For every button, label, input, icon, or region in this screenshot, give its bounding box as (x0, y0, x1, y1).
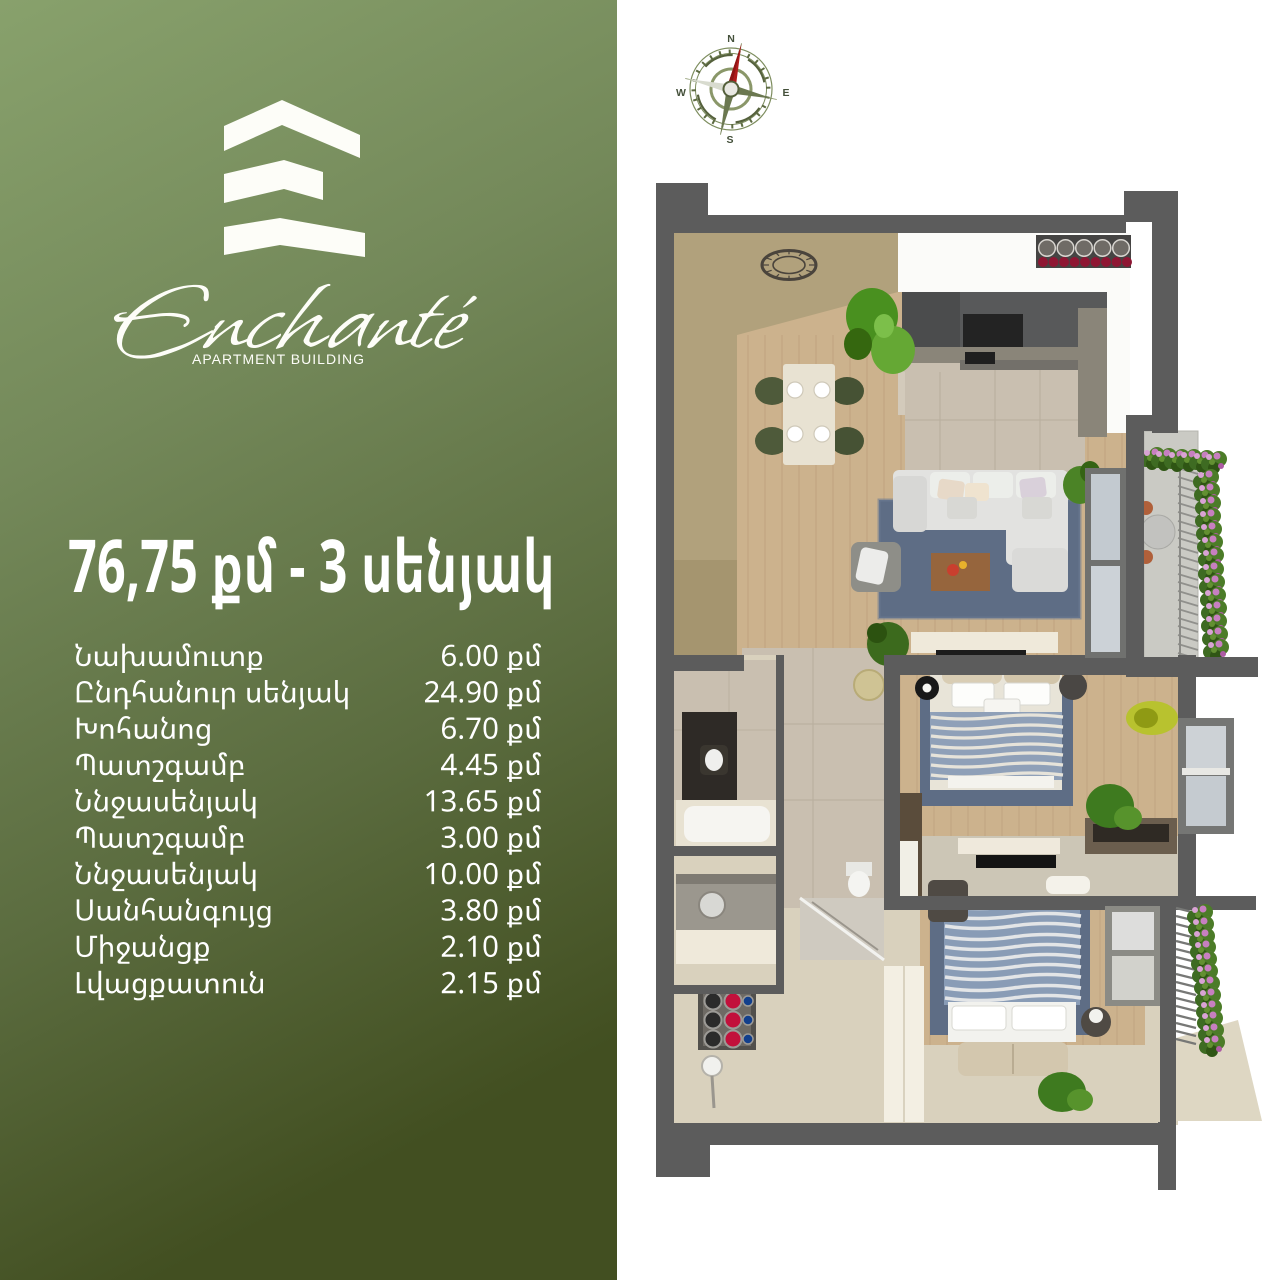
svg-text:APARTMENT BUILDING: APARTMENT BUILDING (192, 351, 365, 367)
svg-text:E: E (782, 87, 789, 99)
svg-text:S: S (726, 134, 733, 146)
svg-text:W: W (676, 87, 686, 99)
svg-text:N: N (727, 33, 735, 45)
